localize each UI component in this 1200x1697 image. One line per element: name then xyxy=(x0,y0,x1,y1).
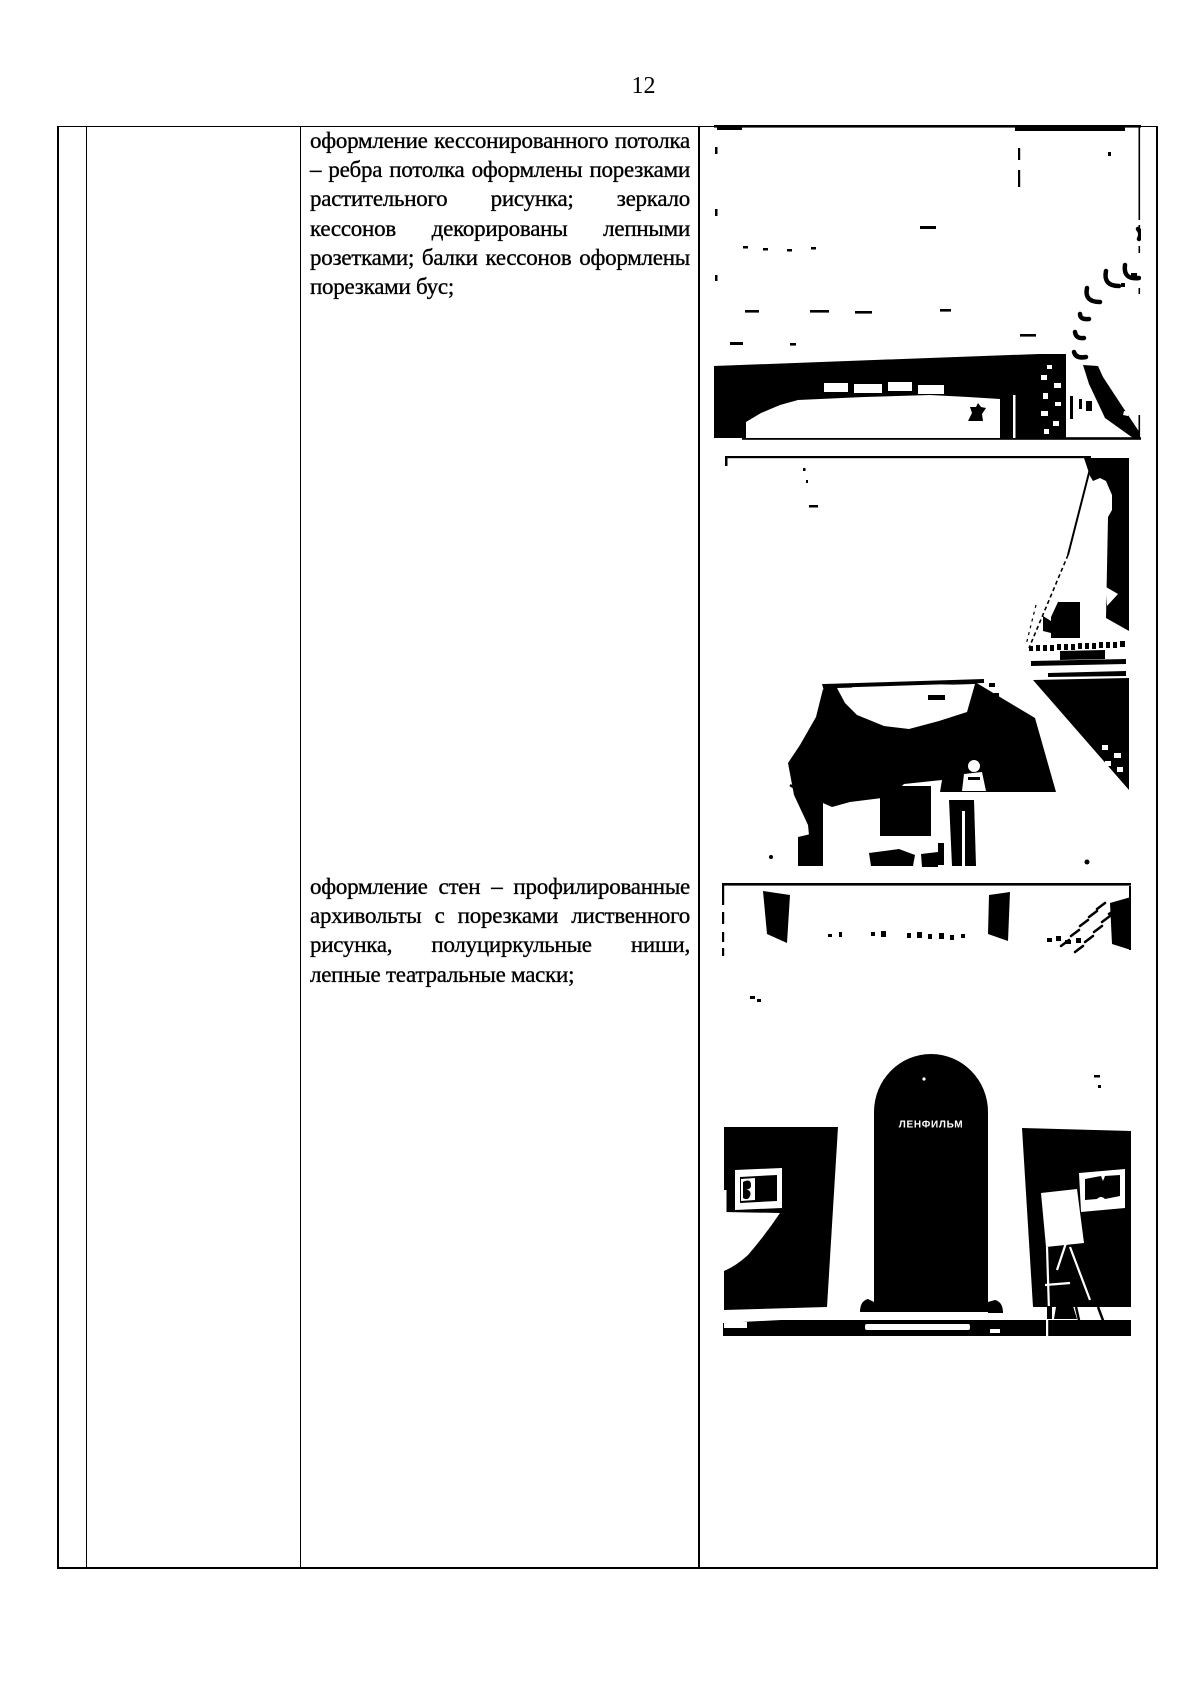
svg-text:ЛЕНФИЛЬМ: ЛЕНФИЛЬМ xyxy=(899,1120,964,1131)
